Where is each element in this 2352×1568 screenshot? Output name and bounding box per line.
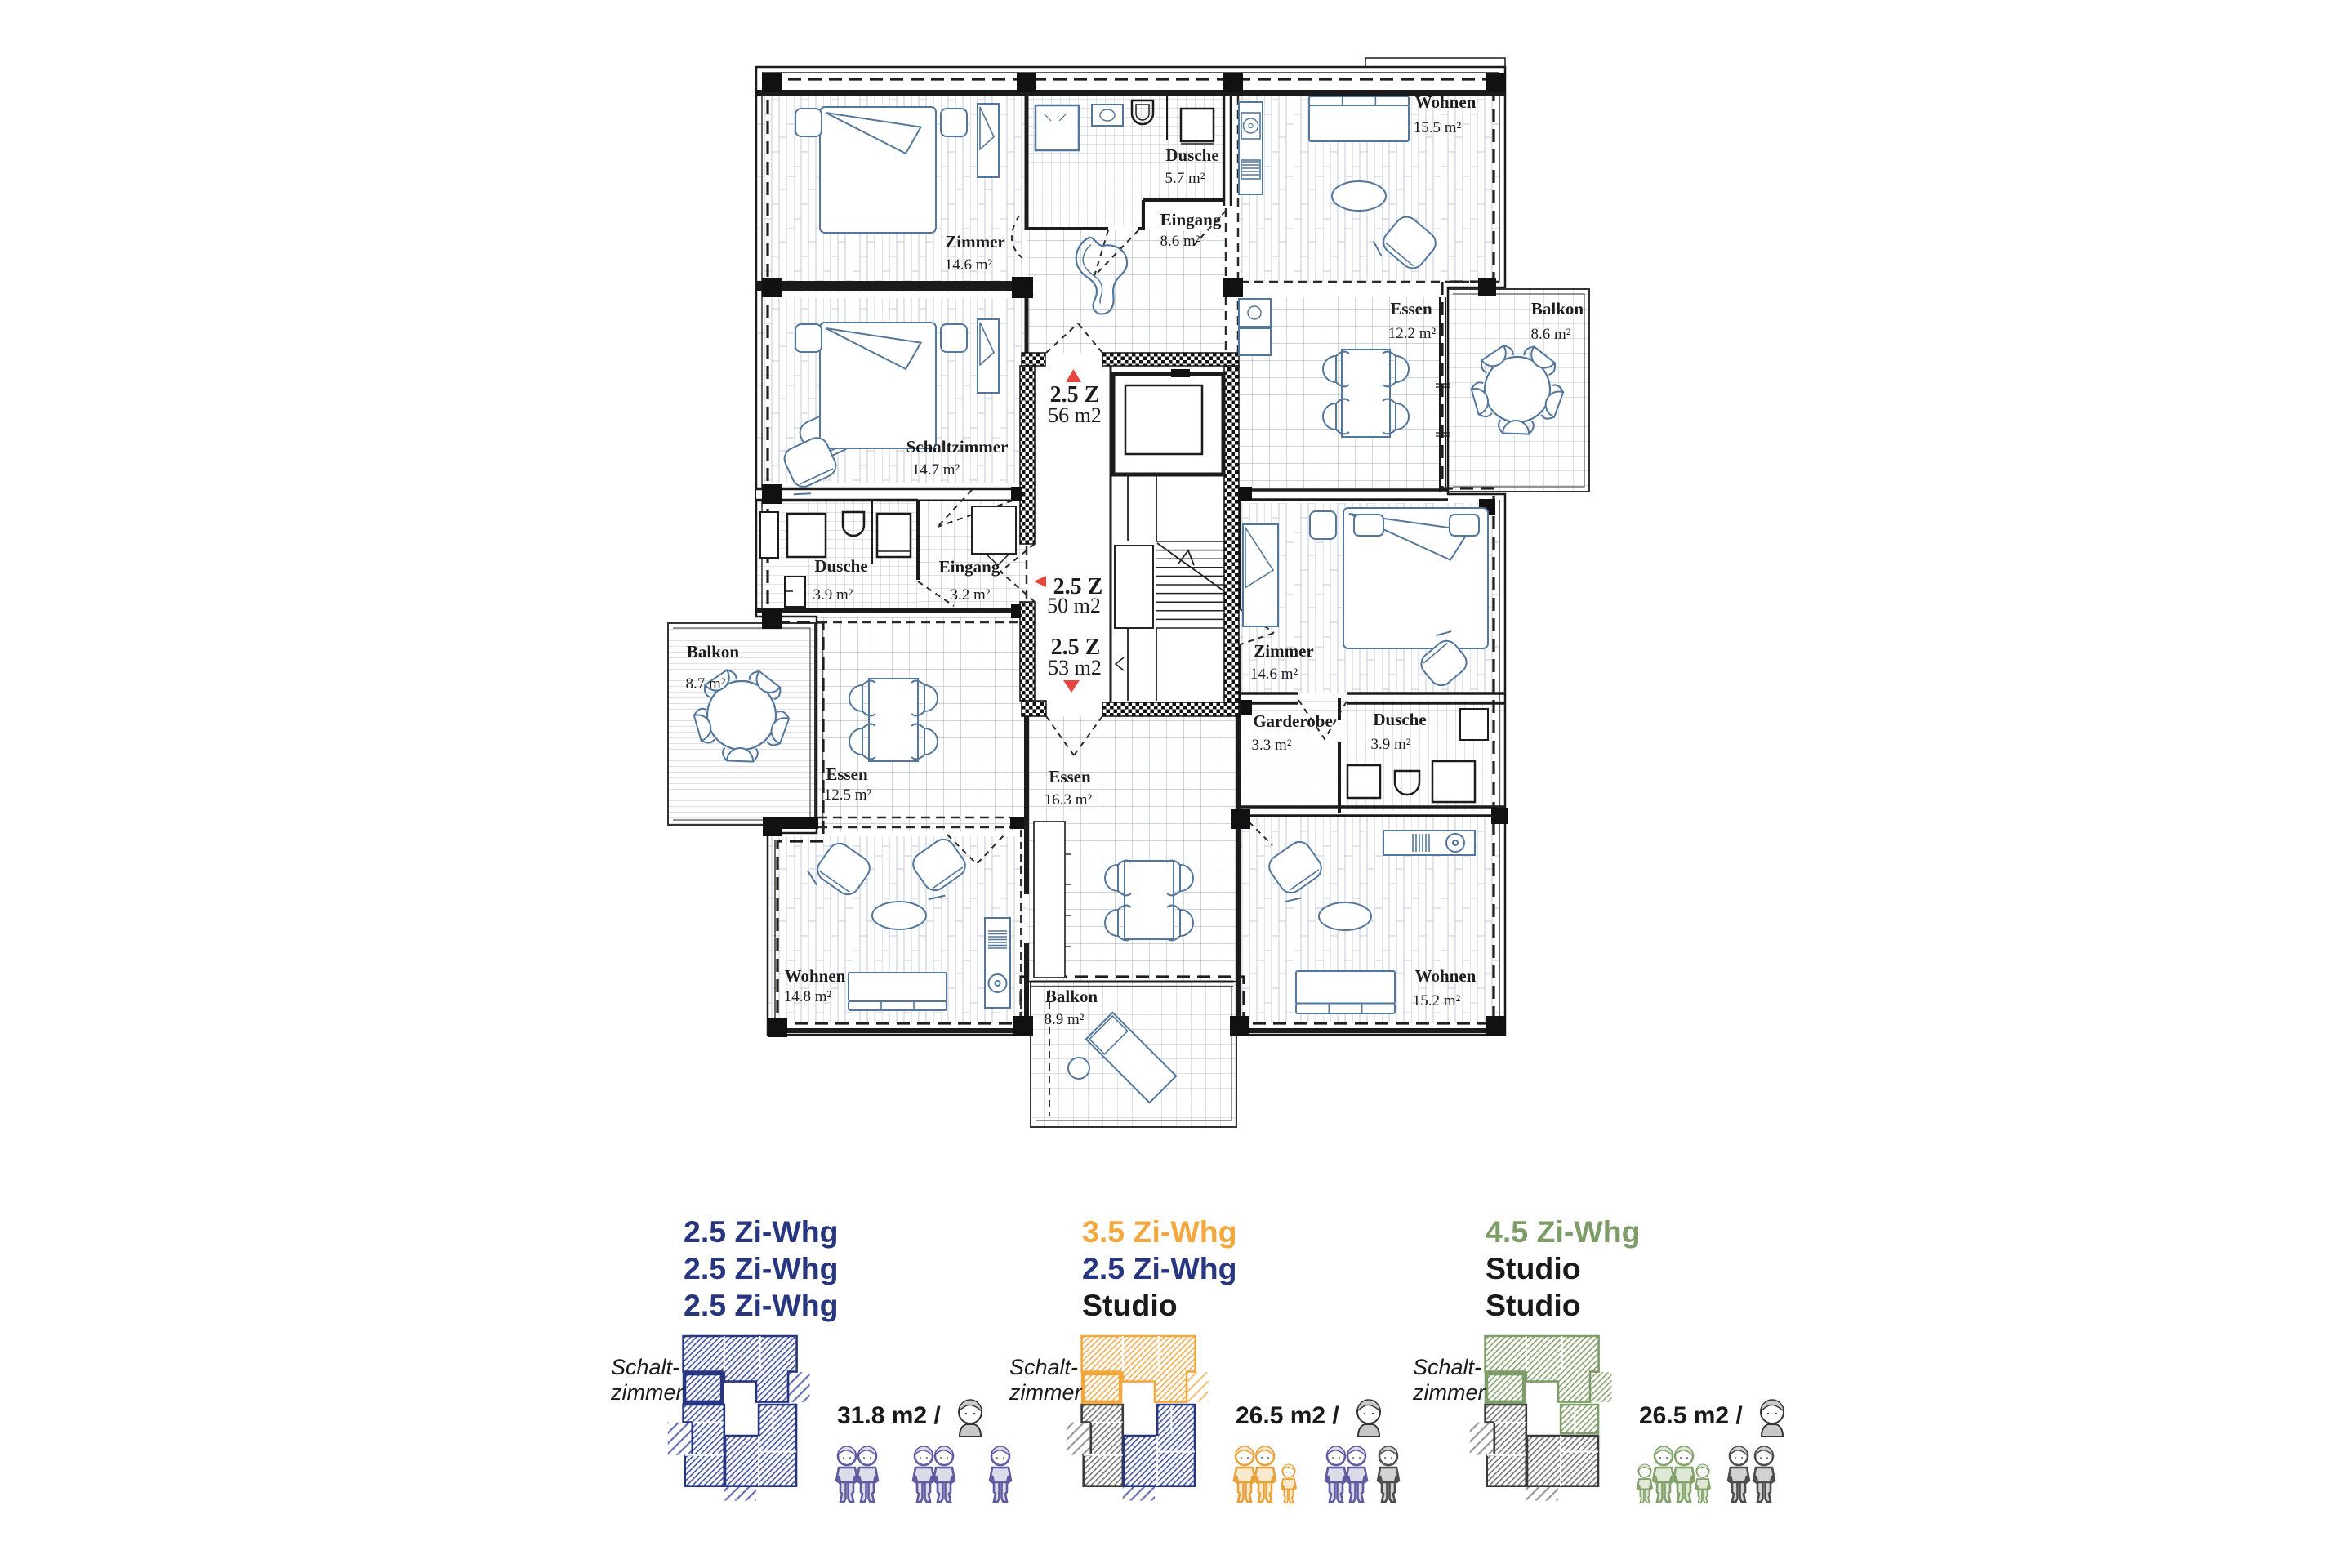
svg-text:zimmer: zimmer xyxy=(610,1380,684,1405)
svg-text:8.9 m²: 8.9 m² xyxy=(1045,1011,1085,1028)
svg-text:Garderobe: Garderobe xyxy=(1253,711,1333,731)
svg-text:14.7 m²: 14.7 m² xyxy=(912,461,960,479)
svg-text:8.6 m²: 8.6 m² xyxy=(1160,233,1200,250)
svg-text:15.5 m²: 15.5 m² xyxy=(1414,119,1462,136)
svg-text:3.5 Zi-Whg: 3.5 Zi-Whg xyxy=(1082,1214,1237,1249)
svg-text:Essen: Essen xyxy=(1049,767,1091,786)
svg-text:14.8 m²: 14.8 m² xyxy=(784,988,832,1005)
svg-text:2.5 Zi-Whg: 2.5 Zi-Whg xyxy=(684,1251,839,1285)
svg-text:Schalt-: Schalt- xyxy=(611,1355,679,1379)
svg-text:14.6 m²: 14.6 m² xyxy=(945,256,993,274)
svg-text:Essen: Essen xyxy=(1390,299,1432,318)
svg-text:15.2 m²: 15.2 m² xyxy=(1413,992,1461,1009)
svg-text:3.3 m²: 3.3 m² xyxy=(1252,737,1292,754)
svg-text:Wohnen: Wohnen xyxy=(1415,92,1477,112)
svg-text:Eingang: Eingang xyxy=(939,557,1000,577)
svg-text:3.9 m²: 3.9 m² xyxy=(813,586,853,604)
svg-text:8.6 m²: 8.6 m² xyxy=(1531,326,1571,343)
svg-text:Wohnen: Wohnen xyxy=(785,966,846,986)
svg-text:12.5 m²: 12.5 m² xyxy=(824,786,872,804)
svg-text:Balkon: Balkon xyxy=(1531,299,1584,318)
svg-text:26.5 m2 /: 26.5 m2 / xyxy=(1236,1402,1339,1429)
svg-text:53 m2: 53 m2 xyxy=(1048,656,1102,679)
svg-text:2.5 Zi-Whg: 2.5 Zi-Whg xyxy=(1082,1251,1237,1285)
svg-text:Schalt-: Schalt- xyxy=(1413,1355,1481,1379)
svg-text:Zimmer: Zimmer xyxy=(945,232,1004,252)
svg-text:Schaltzimmer: Schaltzimmer xyxy=(906,437,1009,457)
svg-text:56 m2: 56 m2 xyxy=(1048,403,1102,427)
svg-text:4.5 Zi-Whg: 4.5 Zi-Whg xyxy=(1486,1214,1641,1249)
svg-text:3.2 m²: 3.2 m² xyxy=(951,586,991,604)
svg-text:50 m2: 50 m2 xyxy=(1047,594,1101,617)
svg-text:26.5 m2 /: 26.5 m2 / xyxy=(1639,1402,1743,1429)
svg-text:3.9 m²: 3.9 m² xyxy=(1371,736,1411,753)
svg-text:Dusche: Dusche xyxy=(1373,710,1426,729)
svg-text:Studio: Studio xyxy=(1486,1251,1581,1285)
svg-text:Essen: Essen xyxy=(826,764,868,784)
svg-text:Dusche: Dusche xyxy=(1165,145,1218,165)
svg-text:16.3 m²: 16.3 m² xyxy=(1045,791,1093,808)
svg-text:12.2 m²: 12.2 m² xyxy=(1388,325,1437,342)
svg-text:zimmer: zimmer xyxy=(1009,1380,1082,1405)
svg-text:Balkon: Balkon xyxy=(687,642,740,661)
svg-text:14.6 m²: 14.6 m² xyxy=(1250,666,1298,683)
svg-text:Studio: Studio xyxy=(1486,1288,1581,1322)
svg-text:Dusche: Dusche xyxy=(814,556,867,576)
svg-text:2.5 Zi-Whg: 2.5 Zi-Whg xyxy=(684,1214,839,1249)
svg-text:8.7 m²: 8.7 m² xyxy=(686,675,726,693)
svg-text:5.7 m²: 5.7 m² xyxy=(1165,170,1205,187)
svg-text:Wohnen: Wohnen xyxy=(1415,966,1477,986)
svg-text:Schalt-: Schalt- xyxy=(1009,1355,1078,1379)
svg-text:Balkon: Balkon xyxy=(1045,987,1098,1006)
svg-text:zimmer: zimmer xyxy=(1412,1380,1486,1405)
svg-text:Zimmer: Zimmer xyxy=(1254,641,1313,661)
svg-text:2.5 Zi-Whg: 2.5 Zi-Whg xyxy=(684,1288,839,1322)
svg-text:Eingang: Eingang xyxy=(1160,210,1222,229)
svg-text:Studio: Studio xyxy=(1082,1288,1178,1322)
svg-text:31.8 m2 /: 31.8 m2 / xyxy=(837,1402,941,1429)
